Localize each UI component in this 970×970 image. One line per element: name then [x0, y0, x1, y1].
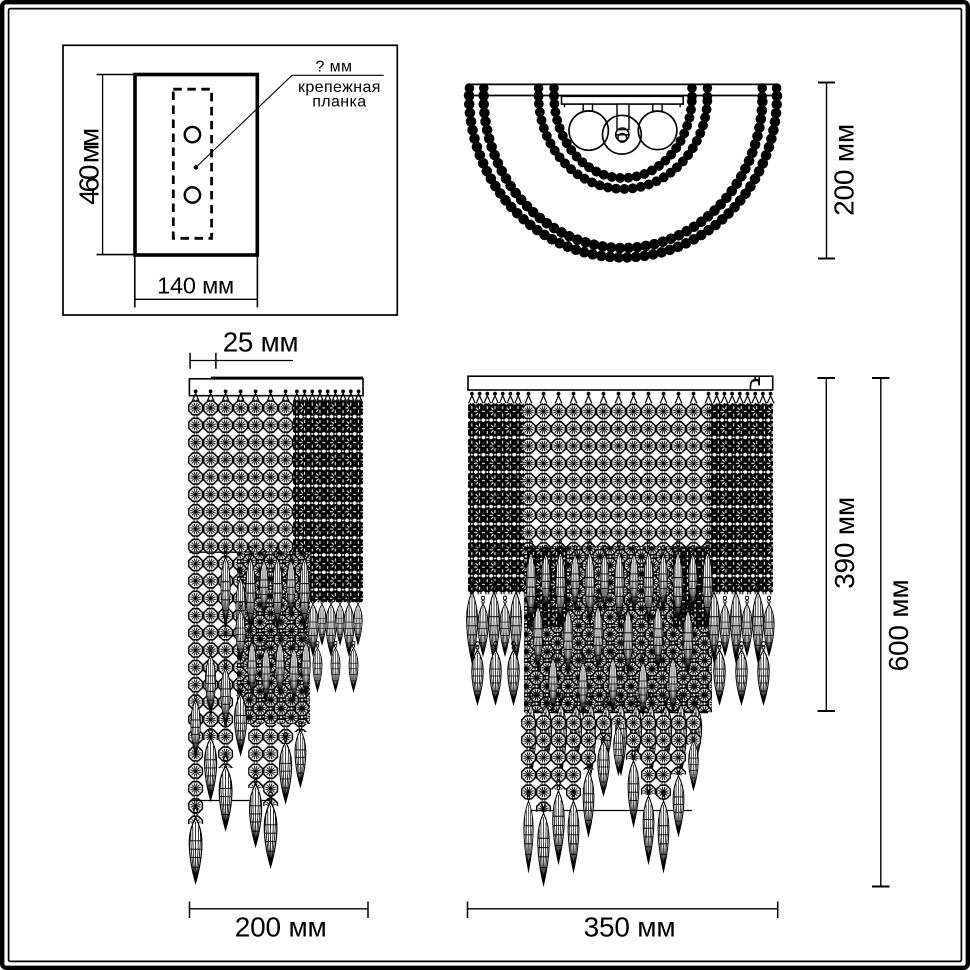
svg-text:350 мм: 350 мм: [584, 912, 676, 943]
svg-text:200 мм: 200 мм: [829, 124, 860, 216]
svg-text:200 мм: 200 мм: [235, 912, 327, 943]
svg-text:460 мм: 460 мм: [73, 129, 104, 205]
svg-text:600 мм: 600 мм: [883, 580, 914, 672]
svg-text:140 мм: 140 мм: [157, 273, 234, 299]
svg-text:390 мм: 390 мм: [829, 497, 860, 589]
svg-text:? мм: ? мм: [316, 59, 353, 76]
svg-text:25 мм: 25 мм: [223, 327, 299, 358]
